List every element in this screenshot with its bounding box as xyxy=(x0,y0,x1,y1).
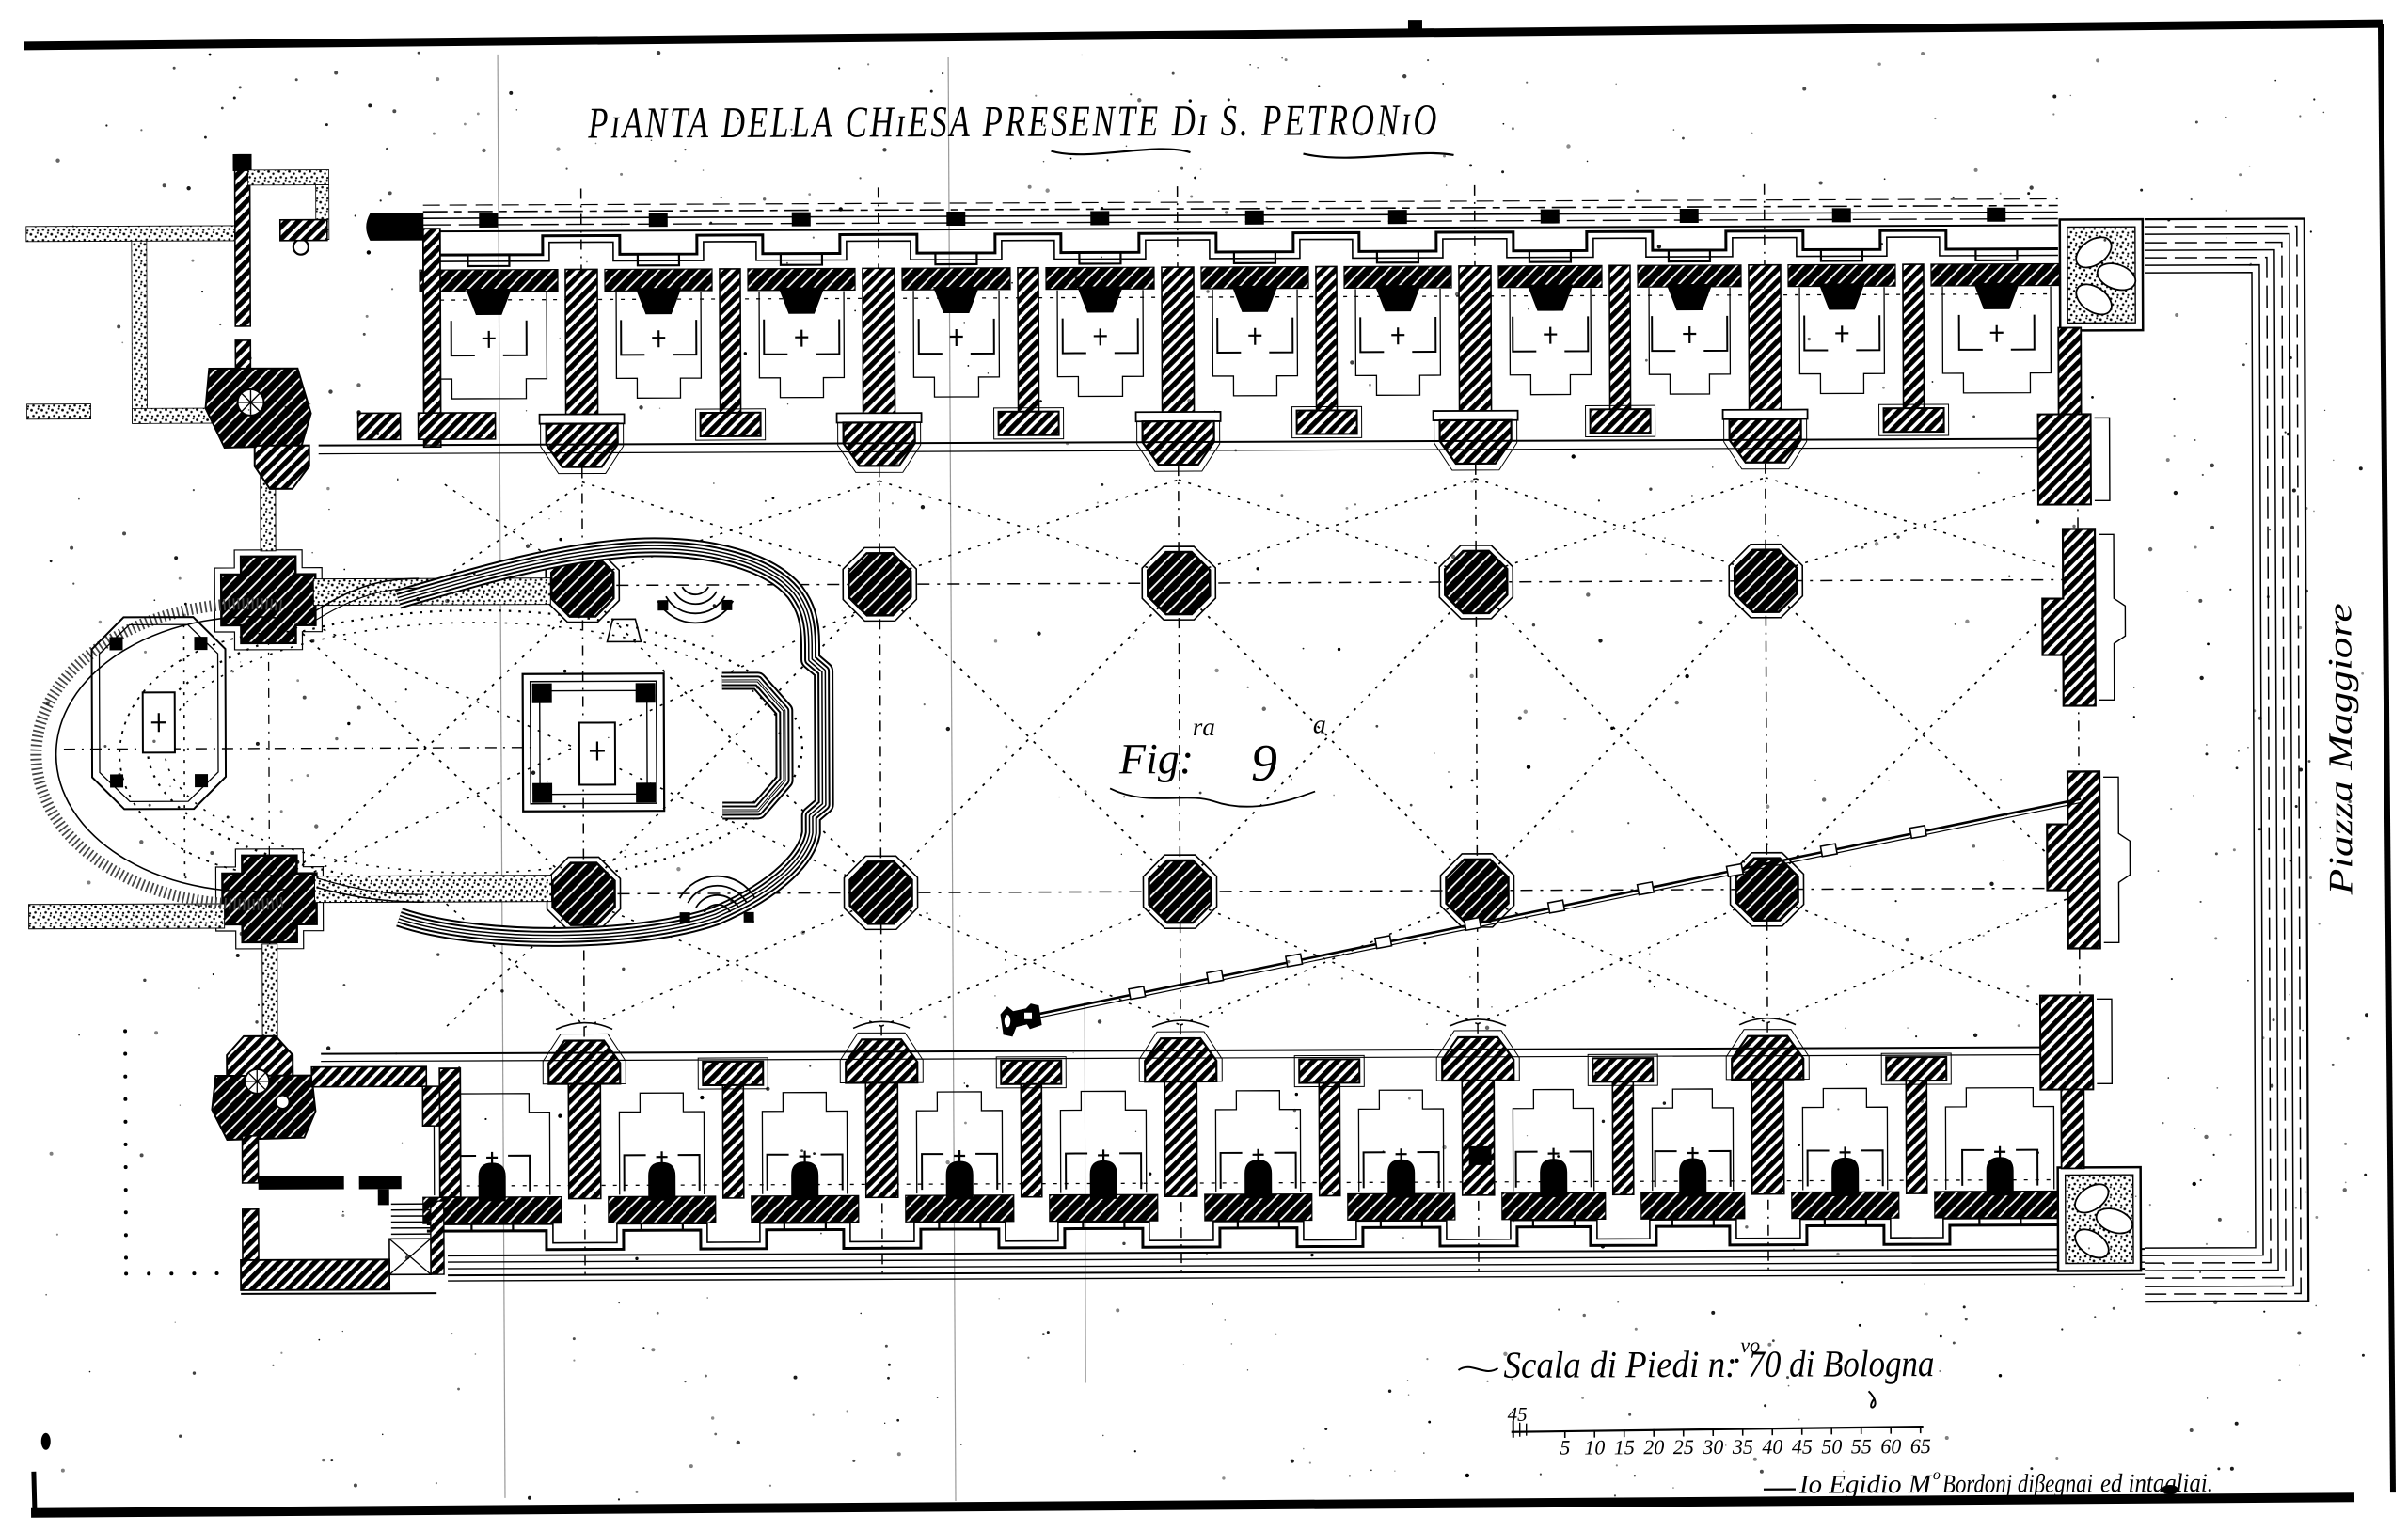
svg-text:25: 25 xyxy=(1673,1435,1694,1459)
svg-text:55: 55 xyxy=(1851,1434,1872,1458)
svg-text:40: 40 xyxy=(1762,1435,1782,1459)
svg-text:Fig:: Fig: xyxy=(1118,734,1194,782)
svg-text:30: 30 xyxy=(1702,1435,1723,1459)
svg-text:o: o xyxy=(1933,1467,1941,1483)
svg-text:35: 35 xyxy=(1732,1435,1753,1459)
svg-text:9: 9 xyxy=(1251,734,1277,793)
svg-text:Piazza Maggiore: Piazza Maggiore xyxy=(2321,603,2359,895)
svg-text:a: a xyxy=(1313,711,1326,740)
svg-text:50: 50 xyxy=(1821,1434,1842,1458)
svg-text:5: 5 xyxy=(1560,1436,1570,1460)
svg-text:15: 15 xyxy=(1614,1435,1635,1459)
svg-text:10: 10 xyxy=(1584,1435,1605,1459)
svg-text:45: 45 xyxy=(1508,1403,1528,1426)
svg-text:PɪANTA DELLA CHɪESA PRESENT: PɪANTA DELLA CHɪESA PRESENTE Dɪ S. PETRO… xyxy=(588,96,1440,148)
svg-text:Bordonj diβegnai: Bordonj diβegnai xyxy=(1942,1469,2093,1499)
svg-text:60: 60 xyxy=(1880,1434,1901,1458)
svg-text:Io Egidio M: Io Egidio M xyxy=(1798,1470,1933,1500)
svg-text:70 di Bologna: 70 di Bologna xyxy=(1748,1342,1934,1385)
svg-text:45: 45 xyxy=(1792,1435,1813,1459)
svg-text:20: 20 xyxy=(1643,1435,1664,1459)
svg-text:ra: ra xyxy=(1193,713,1215,741)
svg-text:65: 65 xyxy=(1910,1434,1931,1458)
svg-text:Scala di Piedi n:: Scala di Piedi n: xyxy=(1503,1343,1736,1386)
